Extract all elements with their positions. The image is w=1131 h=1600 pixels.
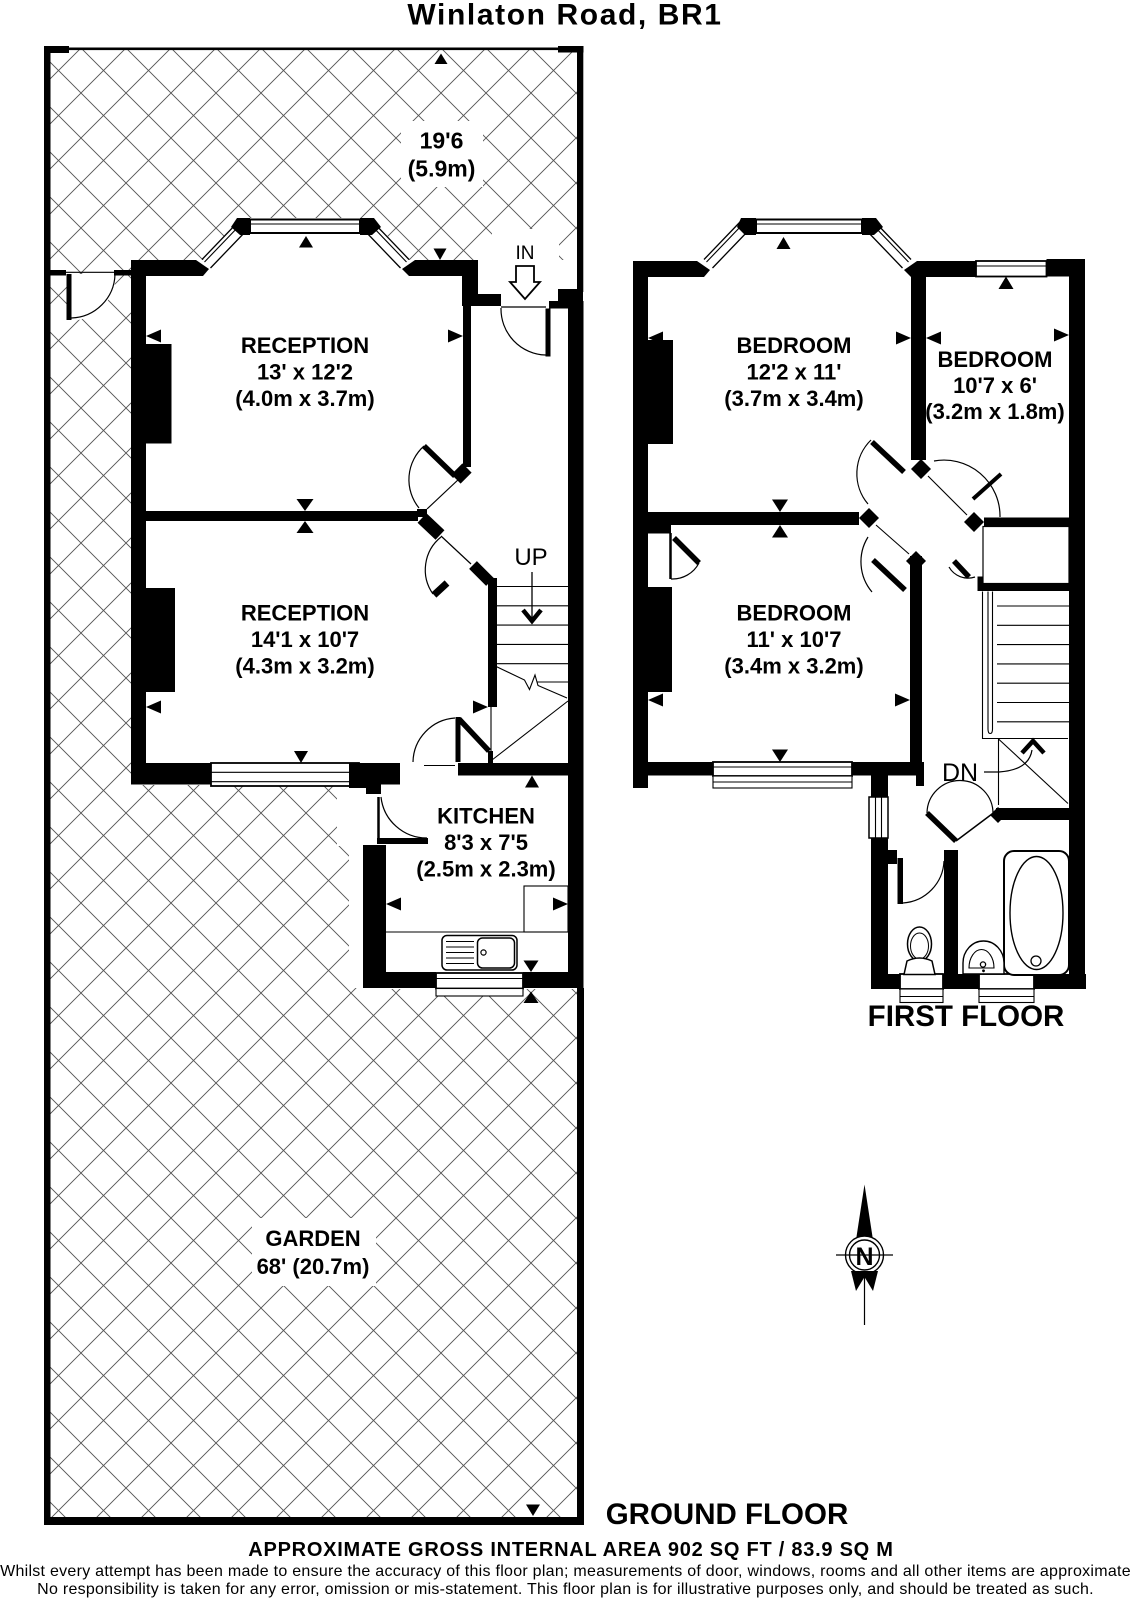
svg-text:8'3 x 7'5: 8'3 x 7'5 — [444, 830, 528, 855]
svg-text:RECEPTION: RECEPTION — [241, 601, 369, 626]
svg-text:10'7 x 6': 10'7 x 6' — [953, 373, 1037, 398]
svg-text:(4.0m x 3.7m): (4.0m x 3.7m) — [235, 386, 374, 411]
svg-text:APPROXIMATE GROSS INTERNAL ARE: APPROXIMATE GROSS INTERNAL AREA 902 SQ F… — [248, 1539, 893, 1561]
svg-text:12'2 x 11': 12'2 x 11' — [747, 360, 842, 385]
svg-text:Whilst every attempt has been: Whilst every attempt has been made to en… — [0, 1563, 1131, 1580]
svg-text:IN: IN — [516, 243, 535, 264]
svg-text:(5.9m): (5.9m) — [408, 156, 476, 182]
svg-text:68' (20.7m): 68' (20.7m) — [257, 1254, 370, 1279]
svg-text:FIRST FLOOR: FIRST FLOOR — [868, 1000, 1065, 1033]
svg-text:BEDROOM: BEDROOM — [737, 333, 852, 358]
svg-text:GARDEN: GARDEN — [265, 1226, 360, 1251]
svg-text:(3.4m x 3.2m): (3.4m x 3.2m) — [724, 654, 863, 679]
svg-text:BEDROOM: BEDROOM — [938, 347, 1053, 372]
svg-text:BEDROOM: BEDROOM — [737, 601, 852, 626]
svg-text:(3.7m x 3.4m): (3.7m x 3.4m) — [724, 386, 863, 411]
svg-text:(3.2m x 1.8m): (3.2m x 1.8m) — [925, 399, 1064, 424]
svg-text:Winlaton Road, BR1: Winlaton Road, BR1 — [407, 0, 722, 32]
svg-text:14'1 x 10'7: 14'1 x 10'7 — [251, 627, 359, 652]
svg-text:13' x 12'2: 13' x 12'2 — [257, 360, 353, 385]
svg-text:KITCHEN: KITCHEN — [437, 804, 535, 829]
svg-text:19'6: 19'6 — [420, 128, 464, 154]
svg-text:UP: UP — [514, 544, 547, 571]
svg-text:No responsibility is taken for: No responsibility is taken for any error… — [37, 1581, 1094, 1598]
svg-text:(2.5m x 2.3m): (2.5m x 2.3m) — [416, 857, 555, 882]
svg-text:(4.3m x 3.2m): (4.3m x 3.2m) — [235, 654, 374, 679]
svg-text:11' x 10'7: 11' x 10'7 — [747, 627, 842, 652]
svg-text:GROUND FLOOR: GROUND FLOOR — [606, 1498, 849, 1531]
svg-text:N: N — [855, 1243, 873, 1271]
svg-text:RECEPTION: RECEPTION — [241, 333, 369, 358]
